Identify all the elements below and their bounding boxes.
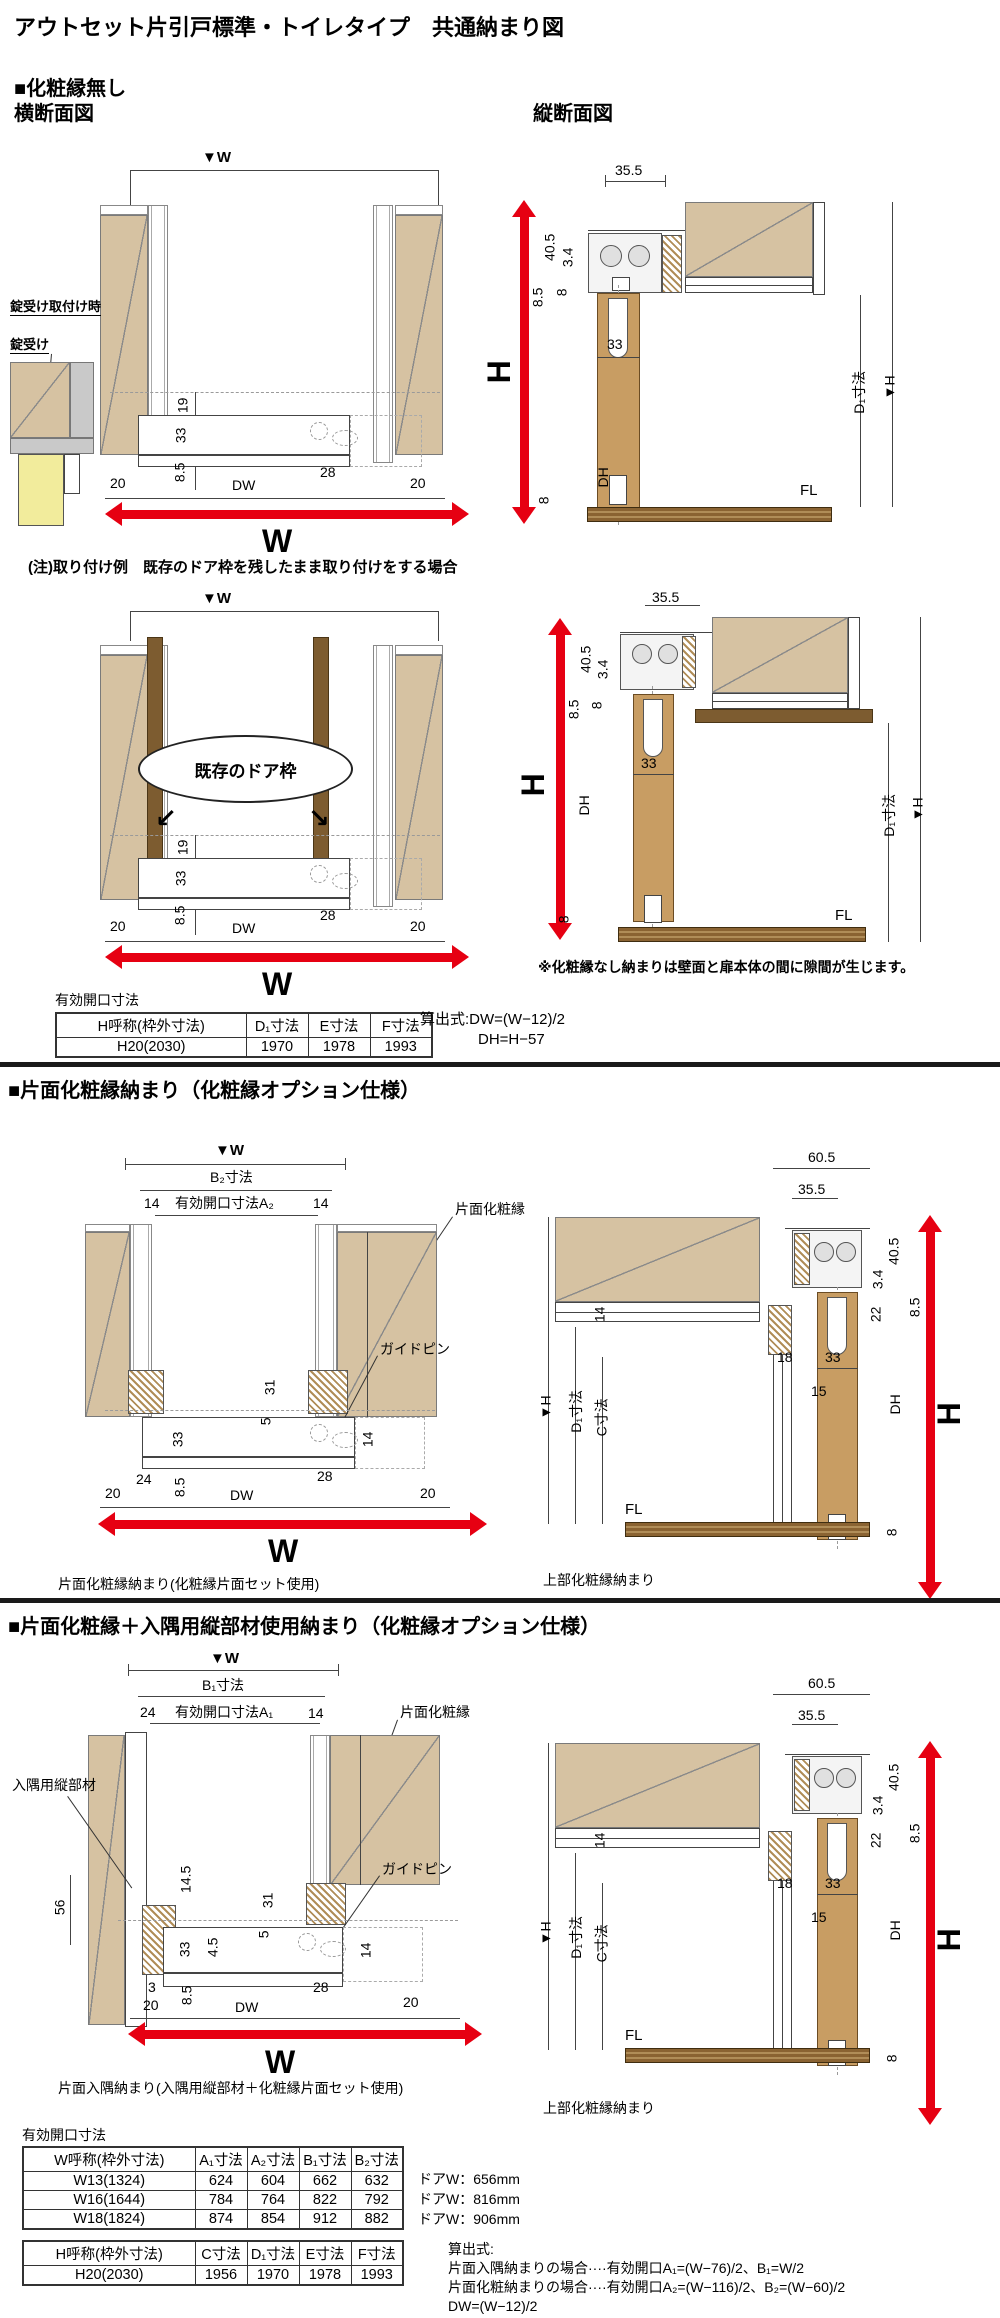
dim-line: [105, 498, 445, 499]
cell: 1993: [370, 1038, 432, 1058]
dim-60-5: 60.5: [808, 1150, 835, 1165]
guide-pin-detail: [310, 1424, 328, 1442]
dim-line: [130, 170, 438, 171]
dim-line: [438, 170, 439, 205]
roller: [628, 245, 650, 267]
guide-pin-detail: [310, 865, 328, 883]
drawing-vert-section-existing-frame: 35.5 H 40.5 3.4 8.5 8 33 DH D₁寸法 ▼H FL 8: [500, 590, 1000, 990]
page-title: アウトセット片引戸標準・トイレタイプ 共通納まり図: [14, 10, 564, 42]
pocket-extension: [350, 415, 422, 467]
tables-title: 有効開口寸法: [22, 2128, 106, 2143]
dim-14: 14: [592, 1307, 607, 1323]
dim-line: [345, 1158, 346, 1170]
dim-line: [792, 1198, 838, 1199]
dim-line: [597, 357, 640, 358]
dim-5: 5: [257, 1930, 272, 1938]
dim-line: [602, 1357, 603, 1524]
col-header: H呼称(枠外寸法): [56, 1013, 246, 1038]
formula-line-2: 片面入隅納まりの場合····有効開口A₁=(W−76)/2、B₁=W/2: [448, 2261, 804, 2276]
wall-left: [85, 1232, 130, 1417]
hanger-bolt: [612, 277, 630, 291]
dim-dw: DW: [230, 1488, 253, 1503]
dim-line: [100, 1507, 450, 1508]
roller: [836, 1768, 856, 1788]
table-row: W18(1824) 874 854 912 882: [23, 2210, 403, 2230]
dim-dh: DH: [888, 1394, 903, 1414]
fl-label: FL: [835, 908, 853, 924]
hanger-slot: [827, 1297, 847, 1355]
dim-40-5: 40.5: [542, 234, 557, 261]
dim-line: [125, 1158, 126, 1170]
dim-line: [665, 175, 666, 187]
fl-label: FL: [625, 1502, 643, 1518]
dim-3-4: 3.4: [870, 1796, 885, 1815]
dim-b1: B₁寸法: [202, 1678, 244, 1693]
dim-14: 14: [360, 1432, 375, 1448]
existing-frame-head: [695, 709, 873, 723]
dim-35-5: 35.5: [798, 1708, 825, 1723]
dim-line: [792, 1724, 838, 1725]
door-w-note-1: ドアW：656mm: [418, 2172, 520, 2187]
floor: [625, 1522, 870, 1537]
trim-line: [555, 1838, 760, 1839]
dim-33: 33: [173, 428, 188, 444]
formula-dh: DH=H−57: [478, 1032, 545, 1048]
dim-8: 8: [885, 1528, 900, 1536]
one-side-trim-label: 片面化粧縁: [400, 1705, 470, 1720]
dim-8-bottom: 8: [537, 496, 552, 504]
dim-5: 5: [259, 1417, 274, 1425]
col-header: B₁寸法: [299, 2147, 351, 2172]
section1-cross-title: 横断面図: [14, 97, 94, 126]
lock-receiver-part: [18, 454, 64, 526]
dim-dh: DH: [596, 467, 611, 487]
dim-33: 33: [825, 1876, 841, 1891]
trim-hatch: [794, 1759, 810, 1811]
trim-hatch-right: [306, 1883, 346, 1925]
col-header: W呼称(枠外寸法): [23, 2147, 195, 2172]
dim-60-5: 60.5: [808, 1676, 835, 1691]
wall-edge-hatch: [662, 235, 682, 293]
section-divider: [0, 1598, 1000, 1603]
pocket-dashed-line: [105, 1410, 435, 1411]
dim-33: 33: [641, 756, 657, 771]
dim-33: 33: [170, 1432, 185, 1448]
col-header: H呼称(枠外寸法): [23, 2241, 195, 2266]
guide-pin-label: ガイドピン: [380, 1342, 450, 1357]
caption: 上部化粧縁納まり: [543, 2098, 655, 2118]
wall-line: [367, 1232, 368, 1417]
dim-8: 8: [885, 2054, 900, 2062]
roller: [632, 644, 652, 664]
dim-20-left: 20: [110, 476, 126, 491]
dim-8-5: 8.5: [907, 1824, 922, 1843]
dim-line: [817, 1894, 858, 1895]
col-header: A₂寸法: [247, 2147, 299, 2172]
dim-40-5: 40.5: [578, 646, 593, 673]
dim-line: [892, 202, 893, 507]
door-w-note-3: ドアW：906mm: [418, 2212, 520, 2227]
caption: 上部化粧縁納まり: [543, 1570, 655, 1590]
section-divider: [0, 1062, 1000, 1067]
lock-receiver-label: 錠受け: [10, 338, 49, 354]
dim-line: [155, 1215, 318, 1216]
dim-line: [920, 617, 921, 942]
drawing-cross-section-corner-member: ▼W B₁寸法 24 有効開口寸法A₁ 14 片面化粧縁 入隅用縦部材 56 1…: [10, 1650, 570, 2098]
drawing-vert-section-one-side-trim: 60.5 35.5 H 14 18 33 15 40.5 3.4 22 8.5 …: [530, 1142, 1000, 1592]
table1-title: 有効開口寸法: [55, 993, 139, 1008]
cell: 632: [351, 2172, 403, 2191]
roller: [814, 1242, 834, 1262]
track-base: [138, 898, 350, 910]
ceiling-line: [785, 1754, 870, 1755]
cell: 1956: [195, 2266, 247, 2286]
col-header: B₂寸法: [351, 2147, 403, 2172]
cell: 912: [299, 2210, 351, 2230]
dim-19: 19: [175, 840, 190, 856]
lock-inset-jamb: [70, 362, 94, 438]
cell: 1970: [247, 2266, 299, 2286]
h-marker: ▼H: [883, 375, 898, 399]
drawing-cross-section-one-side-trim: ▼W B₂寸法 14 有効開口寸法A₂ 14 片面化粧縁 ガイドピン 31 5 …: [10, 1142, 570, 1592]
dim-line: [125, 1164, 345, 1165]
red-width-arrow: [115, 1520, 470, 1529]
dim-line: [548, 1217, 549, 1524]
dim-28: 28: [317, 1469, 333, 1484]
guide-pin-detail: [310, 422, 328, 440]
pocket-dashed-line: [118, 1920, 458, 1921]
wall-section: [685, 202, 813, 277]
page: アウトセット片引戸標準・トイレタイプ 共通納まり図 ■化粧縁無し 横断面図 縦断…: [0, 0, 1000, 2318]
cell: W16(1644): [23, 2191, 195, 2210]
wall-line: [360, 1735, 361, 1885]
opening-size-table-h: H呼称(枠外寸法) C寸法 D₁寸法 E寸法 F寸法 H20(2030) 195…: [22, 2240, 404, 2286]
cell: W18(1824): [23, 2210, 195, 2230]
dim-8-5: 8.5: [566, 700, 581, 719]
dim-line: [338, 1664, 339, 1676]
arrow-down-left-icon: ↙: [155, 805, 177, 832]
red-width-arrow: [122, 510, 452, 519]
dim-dh: DH: [577, 795, 592, 815]
dim-3: 3: [148, 1980, 156, 1995]
red-height-arrow: [520, 217, 529, 507]
hanger-slot: [643, 699, 663, 757]
existing-frame-callout: 既存のドア枠: [138, 735, 353, 803]
pocket-dashed-line: [110, 392, 440, 393]
dim-8-bottom: 8: [557, 915, 572, 923]
wall-section: [555, 1217, 760, 1302]
w-marker-label: ▼W: [202, 150, 231, 166]
dim-14: 14: [308, 1706, 324, 1721]
dim-35-5: 35.5: [798, 1182, 825, 1197]
floor: [625, 2048, 870, 2063]
dim-d1: D₁寸法: [569, 1390, 584, 1433]
col-header: F寸法: [351, 2241, 403, 2266]
opening-size-table-1: H呼称(枠外寸法) D₁寸法 E寸法 F寸法 H20(2030) 1970 19…: [55, 1012, 433, 1058]
dim-40-5: 40.5: [886, 1238, 901, 1265]
section3-heading: ■片面化粧縁＋入隅用縦部材使用納まり（化粧縁オプション仕様）: [8, 1610, 600, 1639]
dim-line: [138, 1696, 325, 1697]
guide-pin-detail: [332, 873, 358, 889]
dim-14-5: 14.5: [178, 1866, 193, 1893]
drawing-vert-section-corner-member: 60.5 35.5 H 14 18 33 15 40.5 3.4 22 8.5 …: [530, 1668, 1000, 2118]
dim-c: C寸法: [595, 1398, 610, 1436]
wall-edge: [848, 617, 860, 709]
wall-cap: [395, 205, 443, 215]
fl-label: FL: [800, 483, 818, 499]
dim-28: 28: [320, 908, 336, 923]
pocket-extension: [343, 1927, 423, 1982]
dim-line: [130, 611, 131, 641]
pocket-extension: [350, 858, 422, 910]
dim-20-right: 20: [410, 919, 426, 934]
formula-line-4: DW=(W−12)/2: [448, 2299, 537, 2314]
dim-33: 33: [825, 1350, 841, 1365]
dim-8-5: 8.5: [179, 1986, 194, 2005]
dim-3-4: 3.4: [595, 660, 610, 679]
red-width-arrow: [145, 2030, 465, 2039]
w-marker-label: ▼W: [215, 1143, 244, 1159]
jamb-right: [310, 1735, 330, 1885]
roller: [814, 1768, 834, 1788]
col-header: D₁寸法: [247, 2241, 299, 2266]
dim-14-left: 14: [144, 1196, 160, 1211]
dim-18: 18: [777, 1876, 793, 1891]
dim-d1: D₁寸法: [882, 794, 897, 837]
dim-35-5: 35.5: [652, 590, 679, 605]
h-marker: ▼H: [539, 1395, 554, 1419]
trim-line: [685, 285, 813, 286]
section1-vert-title: 縦断面図: [533, 97, 613, 126]
h-marker: ▼H: [911, 797, 926, 821]
table-row: W13(1324) 624 604 662 632: [23, 2172, 403, 2191]
dim-28: 28: [320, 465, 336, 480]
trim-line: [555, 1312, 760, 1313]
dim-line: [130, 611, 438, 612]
dim-line: [773, 1694, 870, 1695]
cell: 604: [247, 2172, 299, 2191]
dim-15: 15: [811, 1910, 827, 1925]
lock-inset-bar: [10, 438, 94, 454]
dim-15: 15: [811, 1384, 827, 1399]
dim-w: W: [262, 525, 292, 559]
dim-line: [633, 774, 674, 775]
hanger-slot: [827, 1823, 847, 1881]
dim-33: 33: [173, 871, 188, 887]
dim-w: W: [265, 2046, 295, 2080]
dim-8-5: 8.5: [530, 288, 545, 307]
cell: 764: [247, 2191, 299, 2210]
wall-cap: [395, 645, 443, 655]
dim-3-4: 3.4: [870, 1270, 885, 1289]
dim-line: [817, 1368, 858, 1369]
lock-receiver-when-label: 錠受け取付け時: [10, 300, 101, 316]
roller: [658, 644, 678, 664]
dim-line: [105, 941, 445, 942]
cell: 624: [195, 2172, 247, 2191]
dim-line: [128, 1664, 129, 1676]
dim-33: 33: [177, 1942, 192, 1958]
dim-24: 24: [140, 1705, 156, 1720]
drawing-cross-section-no-trim: ▼W 錠受け取付け時 錠受け 19 33 8.5 20 DW 28 20: [10, 140, 495, 565]
dim-20-left: 20: [105, 1486, 121, 1501]
arrow-down-right-icon: ↘: [308, 805, 330, 832]
wall-section: [712, 617, 848, 693]
formula-line-1: 算出式:: [448, 2242, 494, 2257]
dim-18: 18: [777, 1350, 793, 1365]
dim-h: H: [483, 360, 517, 383]
dim-line: [130, 2018, 460, 2019]
guide-pin-detail: [298, 1933, 316, 1951]
dim-8-5: 8.5: [172, 463, 187, 482]
corner-member: [125, 1732, 147, 2027]
cell: 662: [299, 2172, 351, 2191]
dim-22: 22: [868, 1833, 883, 1849]
cell: W13(1324): [23, 2172, 195, 2191]
dim-20-left: 20: [110, 919, 126, 934]
install-note: (注)取り付け例 既存のドア枠を残したまま取り付けをする場合: [28, 560, 458, 576]
fl-label: FL: [625, 2028, 643, 2044]
wall-cap: [100, 205, 148, 215]
ceiling-line: [785, 1228, 870, 1229]
h-marker: ▼H: [539, 1921, 554, 1945]
caption: 片面入隅納まり(入隅用縦部材＋化粧縁片面セット使用): [58, 2078, 403, 2098]
wall-cap: [337, 1224, 437, 1232]
guide-pin-label: ガイドピン: [382, 1862, 452, 1877]
wall-right: [337, 1232, 437, 1417]
dim-56: 56: [52, 1900, 67, 1916]
caption: 片面化粧縁納まり(化粧縁片面セット使用): [58, 1574, 319, 1594]
dim-line: [128, 1670, 338, 1671]
dim-19: 19: [175, 398, 190, 414]
door-w-note-2: ドアW：816mm: [418, 2192, 520, 2207]
drawing-vert-section-no-trim: 35.5 H 40.5 3.4 8.5 8 33 DH D₁寸法 ▼H FL 8: [500, 145, 1000, 565]
cell: 874: [195, 2210, 247, 2230]
dim-8-5: 8.5: [172, 1478, 187, 1497]
dim-line: [602, 1883, 603, 2050]
dim-line: [605, 175, 606, 187]
guide-pin-detail: [332, 1432, 358, 1448]
trim-hatch-lower: [768, 1831, 792, 1881]
dim-line: [605, 181, 665, 182]
dim-20-right: 20: [403, 1995, 419, 2010]
col-header: C寸法: [195, 2241, 247, 2266]
trim-hatch-left: [128, 1370, 164, 1414]
cell: 792: [351, 2191, 403, 2210]
dim-14: 14: [592, 1833, 607, 1849]
w-marker-label: ▼W: [202, 591, 231, 607]
dim-h: H: [933, 1402, 967, 1425]
track-base: [138, 455, 350, 467]
dim-dh: DH: [888, 1920, 903, 1940]
dim-line: [438, 611, 439, 641]
dim-33: 33: [607, 337, 623, 352]
dim-line: [150, 1723, 320, 1724]
dim-4-5: 4.5: [205, 1938, 220, 1957]
trim-hatch-lower: [768, 1305, 792, 1355]
dim-line: [773, 1168, 870, 1169]
dim-8-5: 8.5: [907, 1298, 922, 1317]
cell: 1978: [308, 1038, 370, 1058]
table-row: W16(1644) 784 764 822 792: [23, 2191, 403, 2210]
guide-pin-detail: [332, 430, 358, 446]
gap-note: ※化粧縁なし納まりは壁面と扉本体の間に隙間が生じます。: [538, 960, 914, 975]
trim-hatch-right: [308, 1370, 348, 1414]
dim-20-left: 20: [143, 1998, 159, 2013]
dim-opening-a2: 有効開口寸法A₂: [175, 1196, 274, 1211]
wall-section: [555, 1743, 760, 1828]
wall-edge: [813, 202, 825, 295]
floor: [587, 507, 832, 522]
red-height-arrow: [556, 635, 565, 923]
cell: 784: [195, 2191, 247, 2210]
guide-pin-detail: [320, 1941, 346, 1957]
wall-cap: [85, 1224, 130, 1232]
dim-35-5: 35.5: [615, 163, 642, 178]
dim-d1: D₁寸法: [852, 371, 867, 414]
dim-line: [645, 605, 700, 606]
cell: 882: [351, 2210, 403, 2230]
dim-dw: DW: [235, 2000, 258, 2015]
one-side-trim-label: 片面化粧縁: [455, 1202, 525, 1217]
section2-heading: ■片面化粧縁納まり（化粧縁オプション仕様）: [8, 1074, 420, 1103]
wall-edge-hatch: [682, 636, 696, 688]
dim-8: 8: [590, 701, 605, 709]
corner-member-label: 入隅用縦部材: [12, 1778, 96, 1793]
red-width-arrow: [122, 953, 452, 962]
lock-inset-wall: [10, 362, 70, 438]
dim-h: H: [517, 773, 551, 796]
floor: [618, 927, 866, 942]
dim-20-right: 20: [420, 1486, 436, 1501]
dim-b2: B₂寸法: [210, 1170, 253, 1185]
trim-line: [712, 701, 848, 702]
cell: 822: [299, 2191, 351, 2210]
floor-guide: [644, 895, 662, 923]
cell: H20(2030): [56, 1038, 246, 1058]
dim-w: W: [268, 1535, 298, 1569]
dim-line: [548, 1743, 549, 2050]
dim-8: 8: [555, 288, 570, 296]
cell: 1993: [351, 2266, 403, 2286]
wall-cap: [100, 645, 148, 655]
dim-opening-a1: 有効開口寸法A₁: [175, 1705, 273, 1720]
dim-31: 31: [260, 1893, 275, 1909]
lock-detail-box: [64, 454, 80, 494]
roller: [600, 245, 622, 267]
trim-hatch: [794, 1233, 810, 1285]
dim-31: 31: [262, 1380, 277, 1396]
dim-40-5: 40.5: [886, 1764, 901, 1791]
cell: 1978: [299, 2266, 351, 2286]
formula-dw: 算出式:DW=(W−12)/2: [420, 1012, 565, 1028]
dim-14b: 14: [358, 1943, 373, 1959]
cell: H20(2030): [23, 2266, 195, 2286]
col-header: D₁寸法: [246, 1013, 308, 1038]
roller: [836, 1242, 856, 1262]
dim-dw: DW: [232, 478, 255, 493]
dim-line: [70, 1875, 71, 1945]
cell: 1970: [246, 1038, 308, 1058]
dim-line: [140, 1190, 332, 1191]
col-header: A₁寸法: [195, 2147, 247, 2172]
pocket-dashed-line: [110, 835, 440, 836]
dim-28: 28: [313, 1980, 329, 1995]
opening-size-table-w: W呼称(枠外寸法) A₁寸法 A₂寸法 B₁寸法 B₂寸法 W13(1324) …: [22, 2146, 404, 2230]
table-row: H20(2030) 1956 1970 1978 1993: [23, 2266, 403, 2286]
dim-14-right: 14: [313, 1196, 329, 1211]
dim-line: [130, 170, 131, 205]
